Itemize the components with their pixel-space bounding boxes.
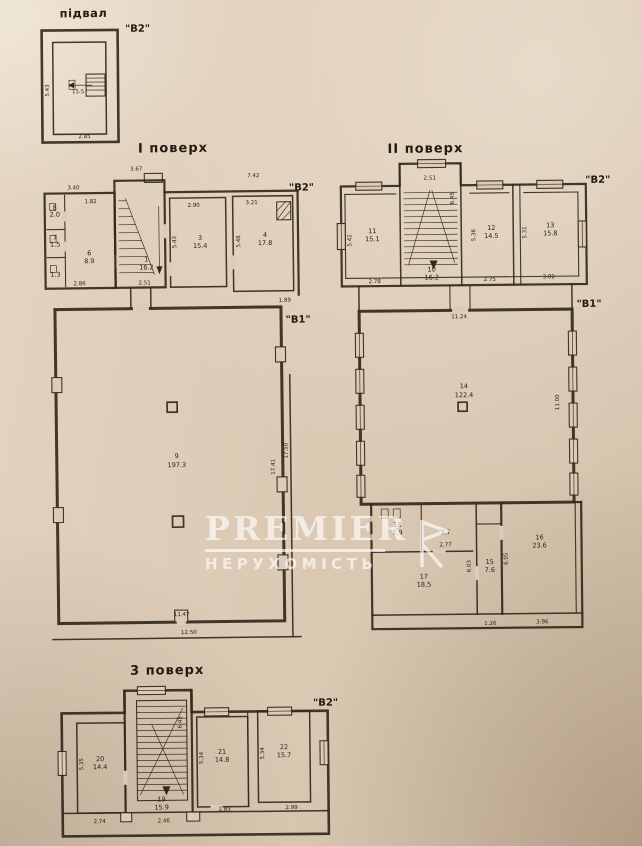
svg-text:7.42: 7.42 bbox=[247, 173, 259, 179]
svg-text:8.9: 8.9 bbox=[84, 257, 94, 265]
floor3-dimension-labels: 5.35 2.74 6.45 2.46 5.34 2.83 5.34 2.99 bbox=[79, 714, 299, 825]
svg-text:2.0: 2.0 bbox=[50, 211, 60, 219]
basement-title: підвал bbox=[60, 6, 108, 20]
basement-plan: підвал "В2" 15.5 5.43 2.85 bbox=[34, 2, 174, 154]
svg-text:11.24: 11.24 bbox=[451, 314, 467, 320]
svg-text:3.67: 3.67 bbox=[130, 167, 143, 173]
basement-block-label: "В2" bbox=[125, 24, 150, 35]
basement-walls bbox=[42, 30, 119, 143]
svg-text:1.89: 1.89 bbox=[279, 298, 292, 304]
svg-text:21: 21 bbox=[218, 748, 226, 756]
svg-text:5.34: 5.34 bbox=[199, 751, 205, 764]
svg-text:6.03: 6.03 bbox=[467, 560, 473, 573]
svg-text:4: 4 bbox=[263, 231, 267, 239]
svg-text:11.00: 11.00 bbox=[555, 394, 561, 410]
svg-text:122.4: 122.4 bbox=[455, 391, 474, 399]
svg-text:6.45: 6.45 bbox=[450, 192, 456, 205]
svg-text:17.50: 17.50 bbox=[284, 442, 290, 458]
floor3-title: 3 поверх bbox=[130, 663, 204, 679]
svg-text:10: 10 bbox=[427, 265, 435, 273]
svg-text:11.47: 11.47 bbox=[174, 612, 190, 618]
svg-text:5.34: 5.34 bbox=[260, 747, 266, 760]
second-floor-plan: ІІ поверх "В2" "В1" bbox=[336, 136, 632, 666]
hall-column bbox=[458, 402, 467, 411]
svg-text:2.74: 2.74 bbox=[94, 819, 107, 825]
basement-dim-left: 5.43 bbox=[45, 84, 51, 97]
hall-column bbox=[167, 402, 177, 412]
svg-text:18.5: 18.5 bbox=[417, 581, 432, 589]
svg-text:19: 19 bbox=[157, 795, 165, 803]
floor3-stairs bbox=[137, 700, 188, 801]
first-floor-plan: І поверх "В2" "В1" bbox=[36, 136, 336, 660]
svg-text:7.6: 7.6 bbox=[485, 566, 495, 574]
svg-text:3.96: 3.96 bbox=[536, 619, 549, 625]
svg-text:17: 17 bbox=[420, 573, 428, 581]
svg-text:16.2: 16.2 bbox=[424, 273, 439, 281]
svg-text:6: 6 bbox=[87, 249, 91, 257]
svg-text:5.42: 5.42 bbox=[347, 234, 353, 246]
svg-text:7.9: 7.9 bbox=[392, 529, 402, 537]
svg-text:2.46: 2.46 bbox=[158, 818, 171, 824]
floor2-block-v1-label: "В1" bbox=[576, 299, 601, 310]
svg-text:2.51: 2.51 bbox=[424, 175, 436, 181]
svg-text:3: 3 bbox=[198, 234, 202, 242]
svg-text:15.1: 15.1 bbox=[365, 235, 380, 243]
svg-text:6.45: 6.45 bbox=[178, 716, 184, 729]
svg-text:3.40: 3.40 bbox=[67, 185, 80, 191]
svg-text:3.02: 3.02 bbox=[543, 274, 555, 280]
svg-text:20: 20 bbox=[96, 755, 104, 763]
svg-text:15.8: 15.8 bbox=[543, 229, 558, 237]
svg-text:1.5: 1.5 bbox=[50, 241, 60, 249]
svg-text:3.21: 3.21 bbox=[245, 200, 257, 206]
floor2-bottom-row-walls bbox=[371, 502, 582, 629]
svg-text:17.41: 17.41 bbox=[271, 459, 277, 475]
floor1-dimension-labels: 3.40 1.82 3.67 7.42 2.90 3.21 5.43 5.48 … bbox=[67, 165, 295, 638]
svg-text:2.99: 2.99 bbox=[285, 805, 298, 811]
floor3-block-v2-label: "В2" bbox=[313, 698, 338, 709]
svg-text:15.9: 15.9 bbox=[154, 803, 169, 811]
svg-text:9: 9 bbox=[175, 452, 179, 460]
svg-text:2.75: 2.75 bbox=[484, 277, 497, 283]
svg-text:5.36: 5.36 bbox=[471, 228, 477, 241]
svg-text:5.48: 5.48 bbox=[236, 235, 242, 248]
svg-text:14.5: 14.5 bbox=[484, 232, 499, 240]
svg-text:11: 11 bbox=[368, 227, 376, 235]
third-floor-plan: 3 поверх "В2" bbox=[50, 650, 350, 846]
svg-text:1: 1 bbox=[144, 255, 148, 263]
svg-text:17.8: 17.8 bbox=[258, 239, 273, 247]
svg-text:2.77: 2.77 bbox=[439, 542, 452, 548]
svg-text:2.51: 2.51 bbox=[138, 280, 150, 286]
svg-text:16.2: 16.2 bbox=[139, 263, 154, 271]
svg-text:15.4: 15.4 bbox=[193, 242, 208, 250]
svg-text:2.83: 2.83 bbox=[218, 807, 231, 813]
svg-text:2.86: 2.86 bbox=[73, 281, 86, 287]
hall-column bbox=[172, 516, 183, 527]
svg-text:15: 15 bbox=[486, 558, 494, 566]
svg-text:197.3: 197.3 bbox=[167, 461, 186, 469]
floor1-block-v1-label: "В1" bbox=[286, 314, 311, 325]
svg-text:12: 12 bbox=[487, 224, 495, 232]
svg-text:5.31: 5.31 bbox=[522, 226, 528, 238]
svg-text:14.8: 14.8 bbox=[215, 756, 230, 764]
floor2-block-v2-label: "В2" bbox=[585, 175, 610, 186]
floor1-block-v2-label: "В2" bbox=[289, 182, 314, 193]
svg-text:18: 18 bbox=[393, 521, 401, 529]
svg-text:23.6: 23.6 bbox=[532, 541, 547, 549]
floor2-title: ІІ поверх bbox=[387, 141, 463, 157]
svg-text:1.26: 1.26 bbox=[484, 621, 497, 627]
svg-text:1.3: 1.3 bbox=[50, 271, 60, 279]
svg-text:12.50: 12.50 bbox=[181, 630, 197, 636]
svg-text:5.35: 5.35 bbox=[79, 758, 85, 771]
svg-text:22: 22 bbox=[280, 743, 288, 751]
svg-text:6.05: 6.05 bbox=[504, 552, 510, 565]
svg-text:16: 16 bbox=[535, 533, 543, 541]
basement-room-area: 15.5 bbox=[72, 89, 85, 95]
window-symbol bbox=[355, 331, 578, 497]
scanned-floorplan-page: підвал "В2" 15.5 5.43 2.85 І пов bbox=[0, 0, 642, 846]
floor1-rooms-3-4-walls bbox=[165, 191, 299, 297]
svg-text:14: 14 bbox=[460, 382, 468, 390]
svg-text:14.4: 14.4 bbox=[93, 763, 108, 771]
svg-text:5.43: 5.43 bbox=[172, 235, 178, 248]
floor1-title: І поверх bbox=[138, 141, 208, 157]
svg-text:15.7: 15.7 bbox=[277, 751, 292, 759]
svg-text:1.82: 1.82 bbox=[84, 199, 96, 205]
svg-text:2.78: 2.78 bbox=[369, 279, 382, 285]
svg-text:2.90: 2.90 bbox=[188, 203, 201, 209]
svg-text:3.7: 3.7 bbox=[440, 528, 450, 536]
svg-text:13: 13 bbox=[546, 221, 554, 229]
